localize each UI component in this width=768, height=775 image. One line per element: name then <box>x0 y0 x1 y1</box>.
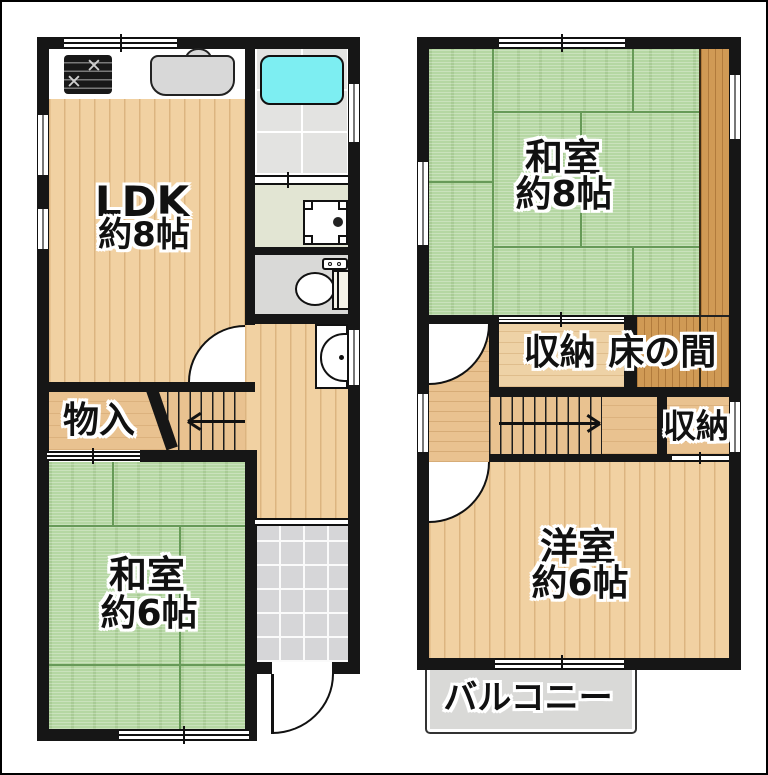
tatami-line <box>492 111 699 113</box>
pan-corner <box>303 235 313 245</box>
tatami-line <box>49 525 245 527</box>
room-label-washitsu-2f: 和室 <box>525 139 601 177</box>
bath-folding-door <box>255 175 348 185</box>
tatami-line <box>632 248 634 315</box>
basin-faucet-dot <box>339 355 344 360</box>
pan-corner <box>338 200 348 210</box>
window <box>417 394 429 452</box>
tokonoma-edge-line <box>637 315 729 317</box>
closet-sliding-door <box>672 454 729 462</box>
pan-corner <box>303 200 313 210</box>
wall <box>489 315 499 397</box>
pan-corner <box>338 235 348 245</box>
tatami-line <box>492 246 699 248</box>
door-tick <box>560 312 562 327</box>
genkan-step <box>255 518 348 526</box>
room-size-washitsu-1f: 約6帖 <box>100 596 197 632</box>
tatami-line <box>112 462 114 526</box>
entrance-door-leaf <box>271 674 274 734</box>
tank-line <box>337 272 339 308</box>
drain-icon <box>333 217 343 227</box>
burner-icon: ✕ <box>86 55 102 77</box>
wall <box>245 450 257 741</box>
tatami-line <box>179 666 181 729</box>
wall <box>245 37 255 325</box>
wall <box>489 454 672 462</box>
toilet-bowl <box>295 272 335 306</box>
tatami-line <box>632 49 634 111</box>
window <box>37 115 49 175</box>
wall <box>429 315 494 324</box>
wall <box>250 247 348 255</box>
stair-arrow-icon <box>188 420 245 423</box>
door-tick <box>699 452 701 464</box>
room-size-youshitsu: 約6帖 <box>531 566 628 602</box>
toilet-dot <box>337 262 341 266</box>
stair-landing-floor <box>602 397 657 454</box>
window <box>348 330 360 385</box>
wall <box>489 387 741 397</box>
window <box>37 209 49 249</box>
door-tick <box>92 448 94 464</box>
burner-icon: ✕ <box>66 71 82 93</box>
room-label-closet-tokonoma: 収納 床の間 <box>524 335 717 371</box>
toilet-icon <box>292 255 350 314</box>
tatami-line <box>429 181 492 183</box>
door-tick <box>287 172 289 188</box>
tatami-line <box>492 49 494 315</box>
room-label-youshitsu: 洋室 <box>540 528 616 566</box>
window <box>417 162 429 245</box>
toilet-tank <box>332 270 350 310</box>
kitchen-sink-icon <box>150 55 235 96</box>
washing-machine-pan-icon <box>303 200 348 245</box>
room-size-ldk: 約8帖 <box>98 218 190 252</box>
balcony-sliding-door <box>495 658 624 670</box>
window <box>729 75 741 139</box>
window <box>729 402 741 452</box>
room-label-closet-2f: 収納 <box>663 410 729 443</box>
toilet-dot <box>328 262 332 266</box>
room-size-washitsu-2f: 約8帖 <box>515 177 612 213</box>
entrance-door-arc <box>272 674 334 734</box>
stair-arrow-icon <box>499 422 600 425</box>
wall <box>417 37 429 670</box>
entrance-opening <box>272 662 332 674</box>
bathtub-icon <box>260 55 344 105</box>
gas-stove-icon: ✕ ✕ <box>64 55 112 94</box>
entrance-genkan-floor <box>255 526 348 662</box>
wall <box>140 450 255 462</box>
washbasin-icon <box>315 324 348 389</box>
window-tick <box>183 726 185 744</box>
stairs <box>489 397 602 454</box>
room-label-storage: 物入 <box>63 403 135 439</box>
closet-sliding-door <box>47 451 140 461</box>
room-label-balcony: バルコニー <box>443 681 612 715</box>
toilet-lid <box>322 258 348 270</box>
window-tick <box>561 34 563 52</box>
wall <box>250 314 348 324</box>
tatami-line <box>49 664 245 666</box>
room-label-washitsu-1f: 和室 <box>109 556 185 594</box>
fusuma-sliding-door <box>499 315 624 324</box>
wood-strip-floor <box>701 49 729 315</box>
window-tick <box>120 34 122 52</box>
floor-plan: ✕ ✕ <box>0 0 768 775</box>
window <box>348 84 360 142</box>
